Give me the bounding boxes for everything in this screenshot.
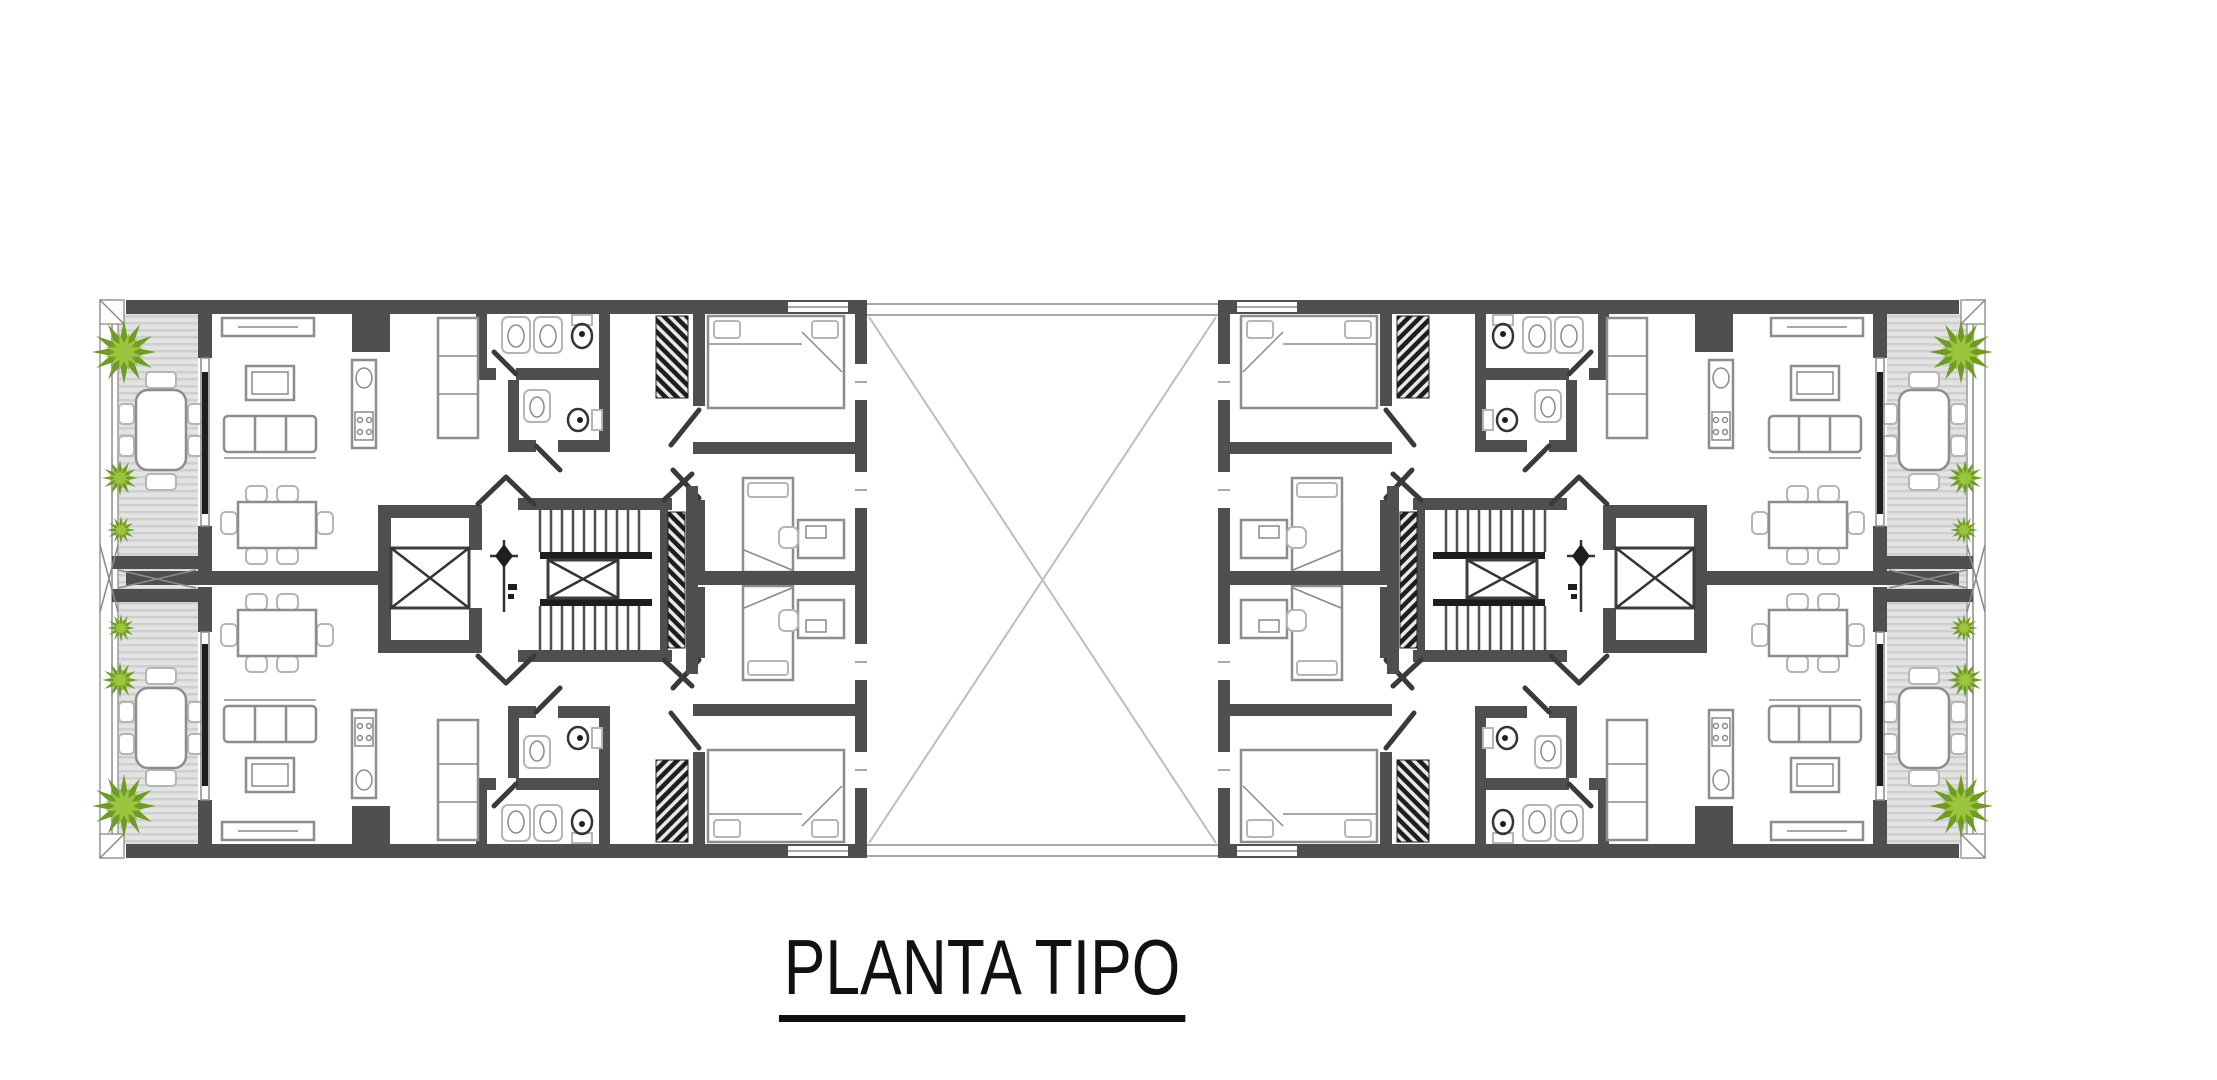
page: PLANTA TIPO <box>0 0 2217 1080</box>
floor-plan-drawing <box>0 0 2217 1080</box>
wing-left <box>92 300 867 858</box>
courtyard-void <box>867 304 1218 856</box>
plan-title-text: PLANTA TIPO <box>784 923 1181 1011</box>
wing-right <box>1218 300 1993 858</box>
plan-title: PLANTA TIPO <box>779 928 1185 1022</box>
